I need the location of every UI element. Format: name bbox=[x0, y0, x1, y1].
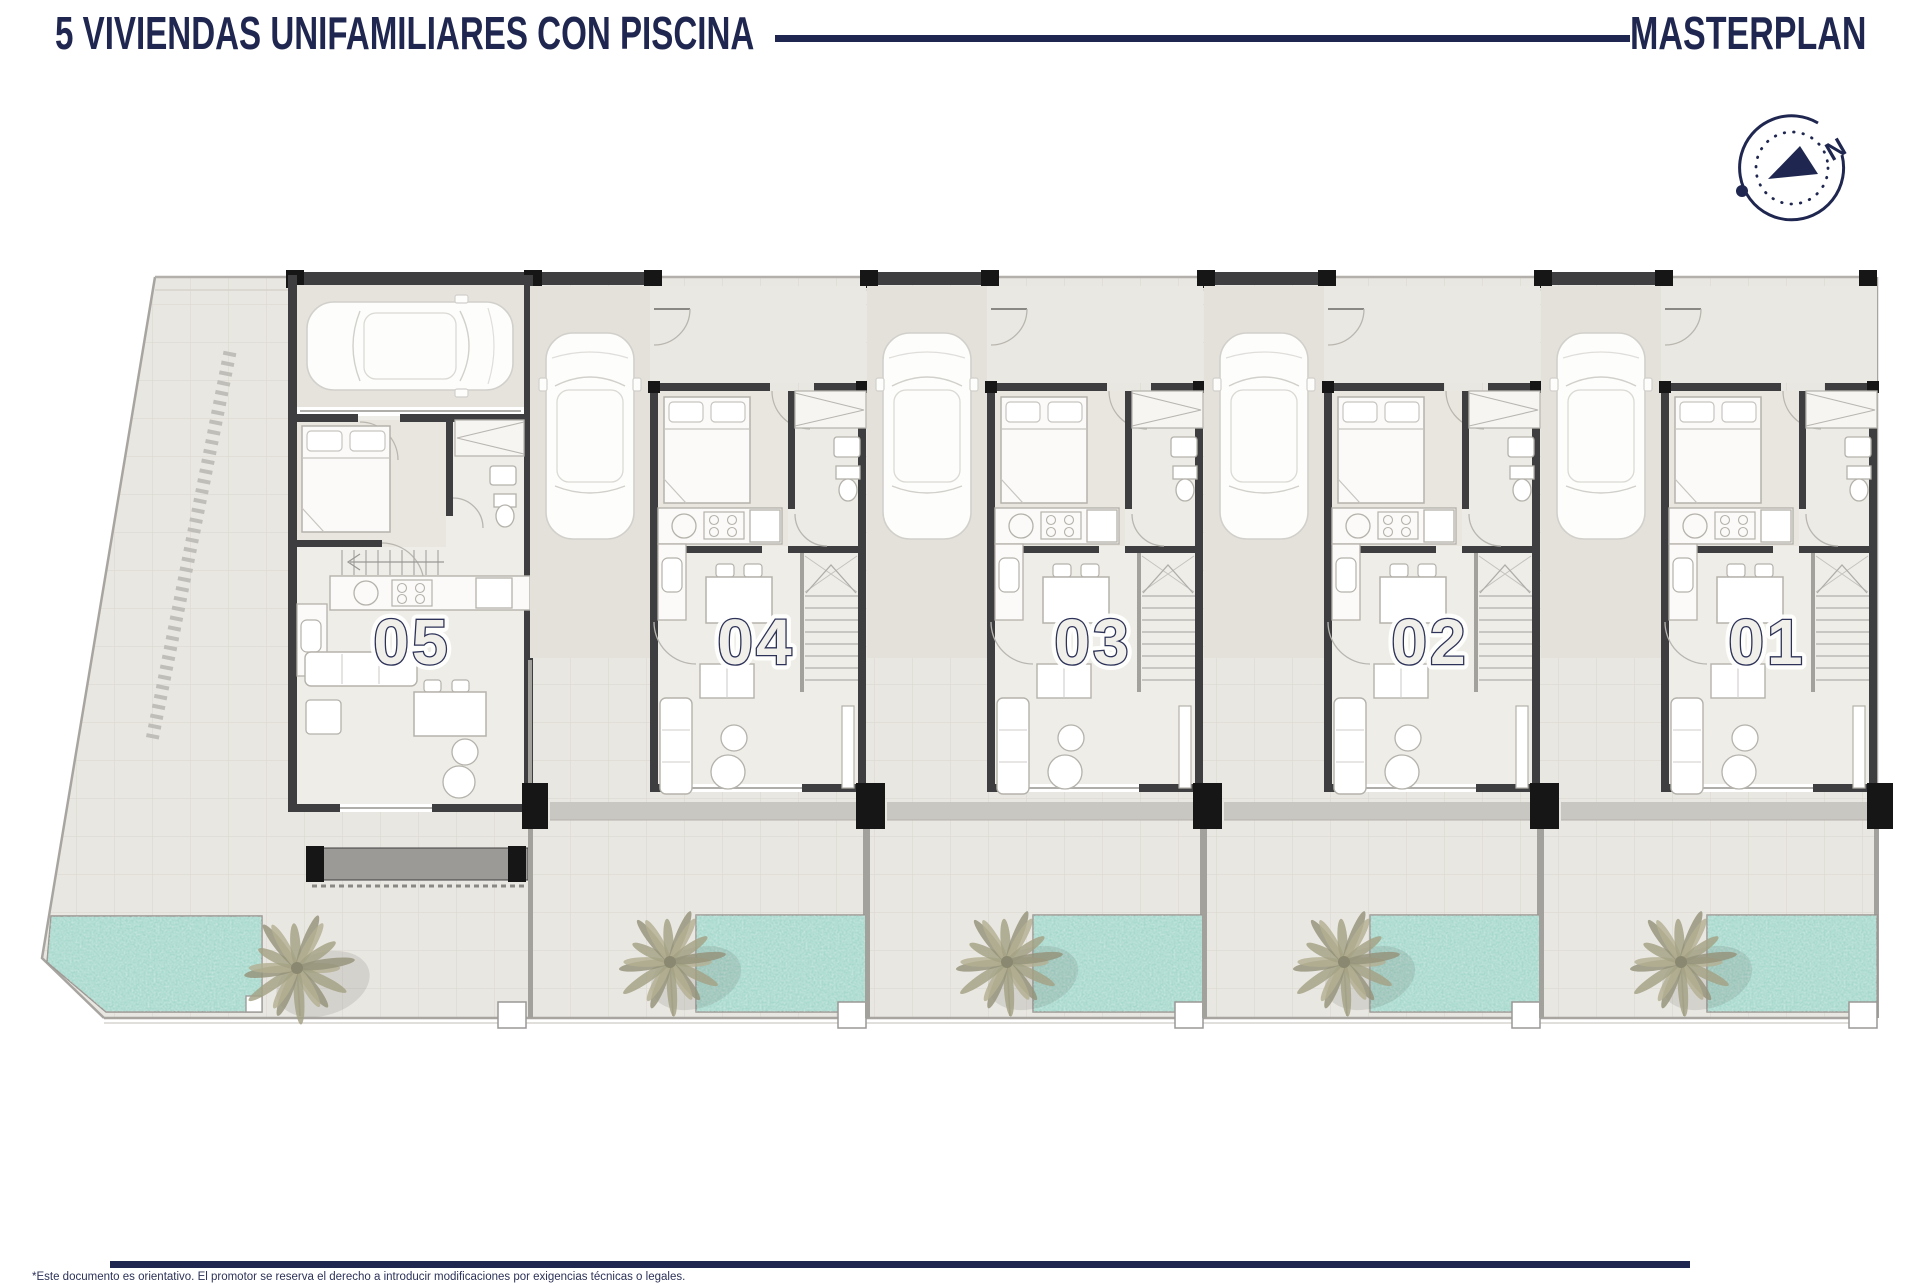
column bbox=[1655, 270, 1673, 288]
wardrobe bbox=[1806, 391, 1877, 428]
radiator bbox=[842, 706, 854, 788]
svg-text:03: 03 bbox=[1054, 606, 1131, 678]
radiator bbox=[1516, 706, 1528, 788]
svg-text:05: 05 bbox=[373, 606, 450, 678]
svg-text:04: 04 bbox=[717, 606, 794, 678]
car-icon bbox=[876, 333, 978, 539]
compass-icon: N bbox=[1736, 116, 1851, 220]
bed bbox=[302, 426, 390, 532]
disclaimer-text: *Este documento es orientativo. El promo… bbox=[32, 1271, 685, 1283]
garden-gate bbox=[1175, 1002, 1203, 1028]
boundary-wall bbox=[1541, 272, 1663, 285]
boundary-wall bbox=[288, 272, 533, 285]
bed bbox=[1675, 397, 1761, 503]
patio-wall bbox=[1539, 829, 1544, 1018]
garden-gate bbox=[838, 1002, 866, 1028]
car-icon bbox=[539, 333, 641, 539]
unit-number-label: 0101 bbox=[1728, 606, 1805, 678]
garden-gate bbox=[1849, 1002, 1877, 1028]
car-icon bbox=[307, 295, 513, 397]
north-label: N bbox=[1820, 131, 1851, 166]
car-icon bbox=[1550, 333, 1652, 539]
wardrobe bbox=[1469, 391, 1540, 428]
boundary-wall bbox=[530, 272, 652, 285]
column bbox=[1197, 270, 1215, 288]
unit-number-label: 0202 bbox=[1391, 606, 1468, 678]
patio-wall bbox=[865, 829, 870, 1018]
footer-bar bbox=[110, 1261, 1690, 1268]
radiator bbox=[1179, 706, 1191, 788]
wardrobe bbox=[795, 391, 866, 428]
garden-gate bbox=[1512, 1002, 1540, 1028]
garden-gate bbox=[498, 1002, 526, 1028]
pool bbox=[47, 916, 262, 1012]
wardrobe bbox=[1132, 391, 1203, 428]
bed bbox=[1338, 397, 1424, 503]
terrace-pergola bbox=[306, 846, 528, 886]
patio-wall bbox=[528, 829, 533, 1018]
column bbox=[1534, 270, 1552, 288]
column bbox=[1859, 270, 1877, 288]
column bbox=[644, 270, 662, 288]
wardrobe bbox=[455, 420, 524, 456]
bed bbox=[1001, 397, 1087, 503]
unit-number-label: 0303 bbox=[1054, 606, 1131, 678]
radiator bbox=[1853, 706, 1865, 788]
boundary-wall bbox=[1204, 272, 1326, 285]
site-plan: 05050404030302020101N bbox=[0, 0, 1920, 1280]
column bbox=[981, 270, 999, 288]
north-arrow bbox=[1768, 146, 1818, 179]
svg-text:01: 01 bbox=[1728, 606, 1805, 678]
unit-number-label: 0505 bbox=[373, 606, 450, 678]
rear-fence bbox=[104, 1018, 1877, 1023]
patio-wall bbox=[1202, 829, 1207, 1018]
column bbox=[1318, 270, 1336, 288]
column bbox=[860, 270, 878, 288]
bed bbox=[664, 397, 750, 503]
svg-text:02: 02 bbox=[1391, 606, 1468, 678]
car-icon bbox=[1213, 333, 1315, 539]
unit-number-label: 0404 bbox=[717, 606, 794, 678]
boundary-wall bbox=[867, 272, 989, 285]
